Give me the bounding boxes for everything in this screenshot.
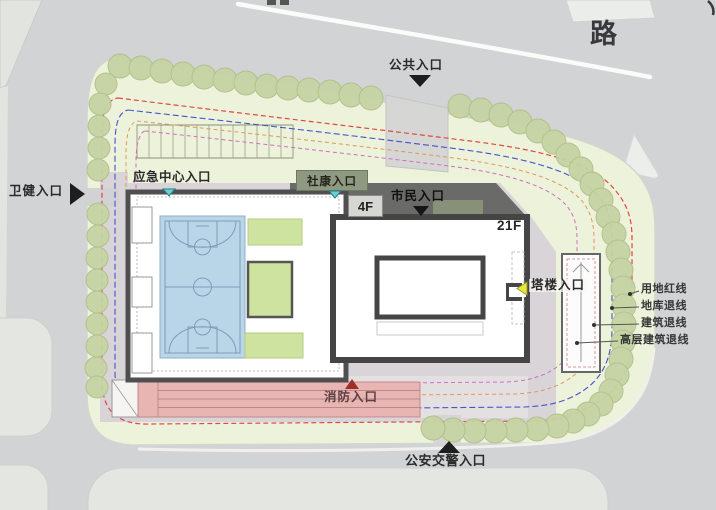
public-entrance-walkway <box>386 95 448 172</box>
cropped-road-text-fragment <box>267 0 276 5</box>
citizen-entrance-arrow-icon <box>413 206 429 216</box>
community-clinic-entrance-band: 社康入口 <box>296 170 368 191</box>
site-plan: 路 公共入口 卫健入口 应急中心入口 社康入口 市民入口 4F 21F 塔楼入口… <box>0 0 716 510</box>
tower-entrance-label: 塔楼入口 <box>529 279 587 292</box>
tower-entrance-arrow-icon <box>516 281 528 296</box>
legend-item-basement-setback: 地库退线 <box>641 301 687 313</box>
fire-entrance-label: 消防入口 <box>324 391 378 404</box>
podium-floor-badge: 4F <box>348 195 383 217</box>
basketball-court <box>160 216 245 358</box>
public-entrance-arrow-icon <box>409 75 431 87</box>
road-name-label: 路 <box>590 20 617 48</box>
podium-floor-label: 4F <box>358 199 373 214</box>
emergency-center-entrance-label: 应急中心入口 <box>133 171 211 184</box>
citizen-entrance-label: 市民入口 <box>391 190 445 203</box>
legend-item-building-setback: 建筑退线 <box>641 318 687 330</box>
ramp-structure <box>562 254 600 372</box>
health-entrance-arrow-icon <box>70 183 85 205</box>
police-entrance-arrow-icon <box>438 441 460 453</box>
tower-floor-label: 21F <box>497 219 522 233</box>
site-plan-canvas <box>0 0 716 510</box>
legend-item-property-line: 用地红线 <box>641 284 687 296</box>
legend-item-highrise-setback: 高层建筑退线 <box>620 335 689 347</box>
community-clinic-arrow-icon <box>328 190 342 199</box>
community-clinic-entrance-label: 社康入口 <box>307 173 357 189</box>
fire-entrance-arrow-icon <box>345 379 359 389</box>
emergency-center-arrow-icon <box>162 188 176 197</box>
public-entrance-label: 公共入口 <box>389 59 443 72</box>
police-entrance-label: 公安交警入口 <box>405 454 486 468</box>
tower-building <box>333 217 527 360</box>
health-entrance-label: 卫健入口 <box>9 185 63 198</box>
tower-courtyard <box>377 258 483 317</box>
